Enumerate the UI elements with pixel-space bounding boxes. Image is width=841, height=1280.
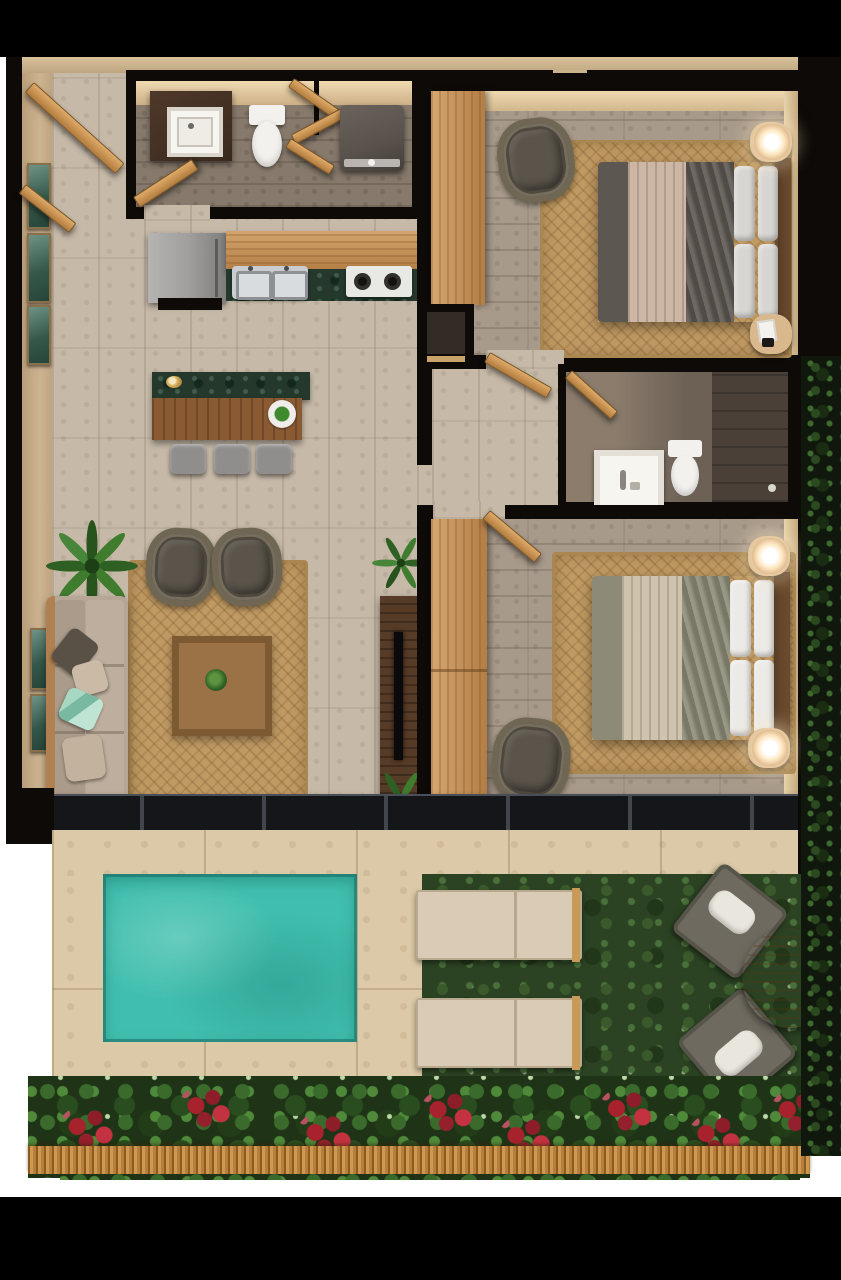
shower-drain-icon <box>768 484 776 492</box>
tv-console <box>380 596 418 794</box>
vase-silhouette <box>620 470 626 490</box>
flower-decor <box>166 376 182 388</box>
bedroom-2-wardrobe <box>431 519 487 831</box>
refrigerator-base-shadow <box>158 298 222 310</box>
bedroom-2 <box>417 505 798 839</box>
red-flower-cluster <box>420 1088 480 1136</box>
bar-stool <box>256 444 292 474</box>
bed-2-duvet <box>682 576 730 740</box>
plunge-pool <box>103 874 357 1042</box>
washer <box>340 105 404 171</box>
serving-plate <box>268 400 296 428</box>
sink-basin <box>272 271 308 300</box>
exterior-wall-left <box>6 57 22 839</box>
bedroom-1 <box>417 73 798 369</box>
bed-2-foot-throw <box>592 576 622 740</box>
toilet <box>248 105 286 171</box>
armchair-cushion <box>506 127 566 194</box>
shower-area <box>712 372 788 502</box>
south-wall-corner <box>6 788 54 844</box>
bathroom-1-door-gap <box>144 205 210 221</box>
bed-2-pillows <box>730 580 774 736</box>
refrigerator <box>148 233 226 303</box>
sink-basin <box>236 271 272 300</box>
nightstand-item <box>762 338 774 347</box>
toilet-bowl <box>252 121 282 167</box>
armchair-cushion <box>501 727 561 794</box>
bed-1-pillows <box>734 166 778 318</box>
sun-lounger <box>416 890 582 960</box>
red-flower-cluster <box>178 1084 238 1132</box>
coffee-table <box>172 636 272 736</box>
living-armchair <box>210 526 284 608</box>
decor-mark <box>630 482 640 490</box>
pillow <box>730 580 751 657</box>
toilet-bowl <box>671 454 699 496</box>
bedroom-2-lamp <box>752 538 788 574</box>
chair-cushion <box>704 886 760 939</box>
red-flower-cluster <box>598 1086 660 1136</box>
sun-lounger <box>416 998 582 1068</box>
vanity-counter <box>150 91 232 161</box>
bedroom-2-lamp <box>752 730 788 766</box>
bed-1-foot-throw <box>598 162 628 322</box>
sofa <box>46 596 128 802</box>
armchair-cushion <box>223 539 272 595</box>
kitchen-counter-wood <box>226 231 417 271</box>
lounger-seam <box>514 892 517 958</box>
pillow <box>754 660 775 737</box>
thatch-border <box>28 1146 810 1174</box>
bathroom-2 <box>558 364 798 512</box>
tv <box>394 632 403 760</box>
armchair-cushion <box>157 539 206 595</box>
pillow <box>754 580 775 657</box>
wardrobe-divider <box>431 669 487 672</box>
burner-icon <box>384 273 401 290</box>
faucet-icon <box>248 266 253 271</box>
niche-edge <box>427 356 465 362</box>
pillow <box>758 166 779 241</box>
bed-2-headboard <box>774 572 790 744</box>
side-hedge <box>801 356 841 1156</box>
vanity-sink <box>167 107 223 157</box>
bed-2 <box>592 576 774 740</box>
bed-1-duvet <box>686 162 734 322</box>
storage-niche <box>418 304 474 366</box>
letterbox-bottom <box>0 1197 841 1280</box>
kitchen-double-sink <box>232 266 308 299</box>
lounger-frame <box>572 996 580 1070</box>
bedroom-1-lamp <box>754 124 790 160</box>
bed-1-pleated-throw <box>628 162 686 322</box>
sofa-frame <box>46 596 55 802</box>
toilet <box>666 440 704 502</box>
sliding-glass-doors <box>22 794 798 832</box>
bathroom-1 <box>126 73 422 219</box>
faucet-icon <box>188 123 194 129</box>
throw-pillow-beige <box>61 733 107 782</box>
living-armchair <box>144 526 218 608</box>
coffee-table-plant <box>205 669 227 691</box>
letterbox-top <box>0 0 841 57</box>
bed-1 <box>598 162 778 322</box>
bar-stool <box>214 444 250 474</box>
lounger-frame <box>572 888 580 962</box>
burner-icon <box>354 273 371 290</box>
pillow <box>758 244 779 319</box>
washer-dial <box>368 159 375 166</box>
faucet-icon <box>284 266 289 271</box>
floorplan-render <box>0 0 841 1280</box>
pillow <box>734 244 755 319</box>
niche-interior <box>427 312 465 354</box>
bedroom-1-wardrobe <box>431 91 485 305</box>
bed-2-pleated-throw <box>622 576 682 740</box>
bar-stool <box>170 444 206 474</box>
wall-art-panel <box>27 305 51 365</box>
wall-art-panel <box>27 233 51 303</box>
chair-cushion <box>710 1026 768 1081</box>
pillow <box>734 166 755 241</box>
bedroom-1-nightstand <box>750 314 792 354</box>
stove <box>346 266 412 297</box>
pillow <box>730 660 751 737</box>
terrace-deck <box>52 830 798 878</box>
lounger-seam <box>514 1000 517 1066</box>
refrigerator-handle <box>215 239 218 297</box>
hallway-west-wall <box>417 365 432 465</box>
